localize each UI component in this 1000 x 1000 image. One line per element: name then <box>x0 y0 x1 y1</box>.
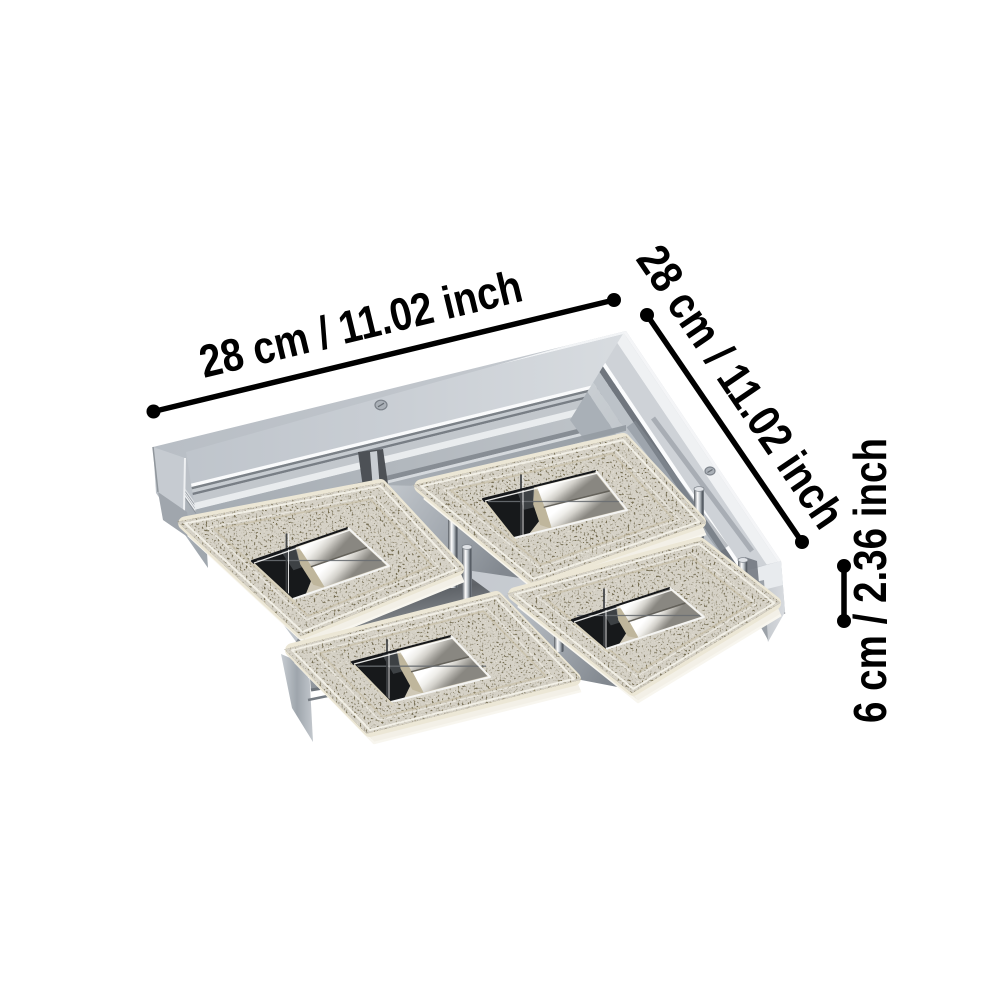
svg-text:6 cm / 2.36 inch: 6 cm / 2.36 inch <box>844 438 896 723</box>
